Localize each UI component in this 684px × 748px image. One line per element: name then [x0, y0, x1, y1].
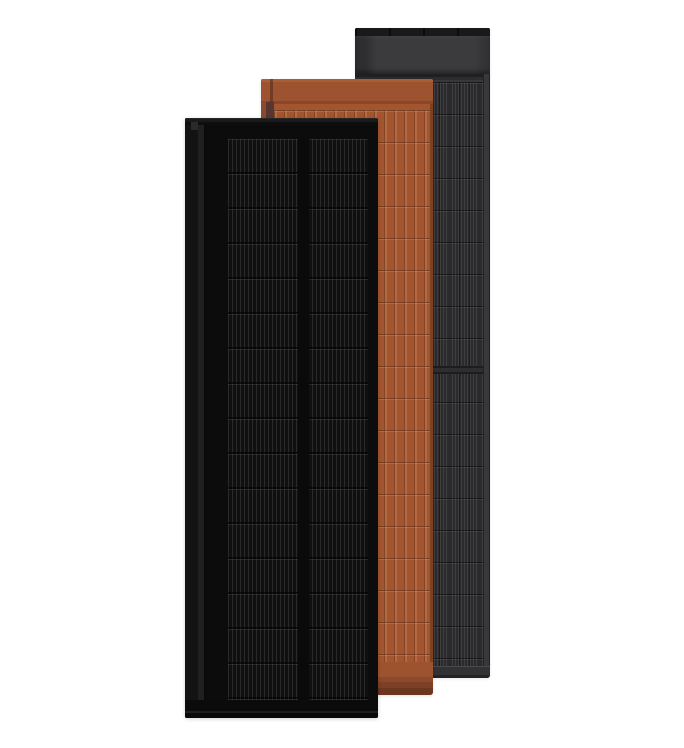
black-left-side-rail: [185, 118, 206, 718]
charcoal-top-mount-bar: [355, 28, 490, 36]
charcoal-right-frame: [483, 74, 490, 666]
terracotta-right-edge: [430, 104, 433, 672]
black-bottom-frame: [185, 700, 378, 718]
black-cell-column-gap: [298, 139, 309, 700]
charcoal-header-flap: [355, 36, 490, 74]
black-corner-notch: [191, 122, 198, 130]
terracotta-header-flap: [261, 79, 433, 104]
solar-panel-black: [185, 118, 378, 718]
product-render-canvas: [0, 0, 684, 748]
terracotta-header-seam: [270, 79, 273, 104]
black-top-bevel: [185, 118, 378, 125]
